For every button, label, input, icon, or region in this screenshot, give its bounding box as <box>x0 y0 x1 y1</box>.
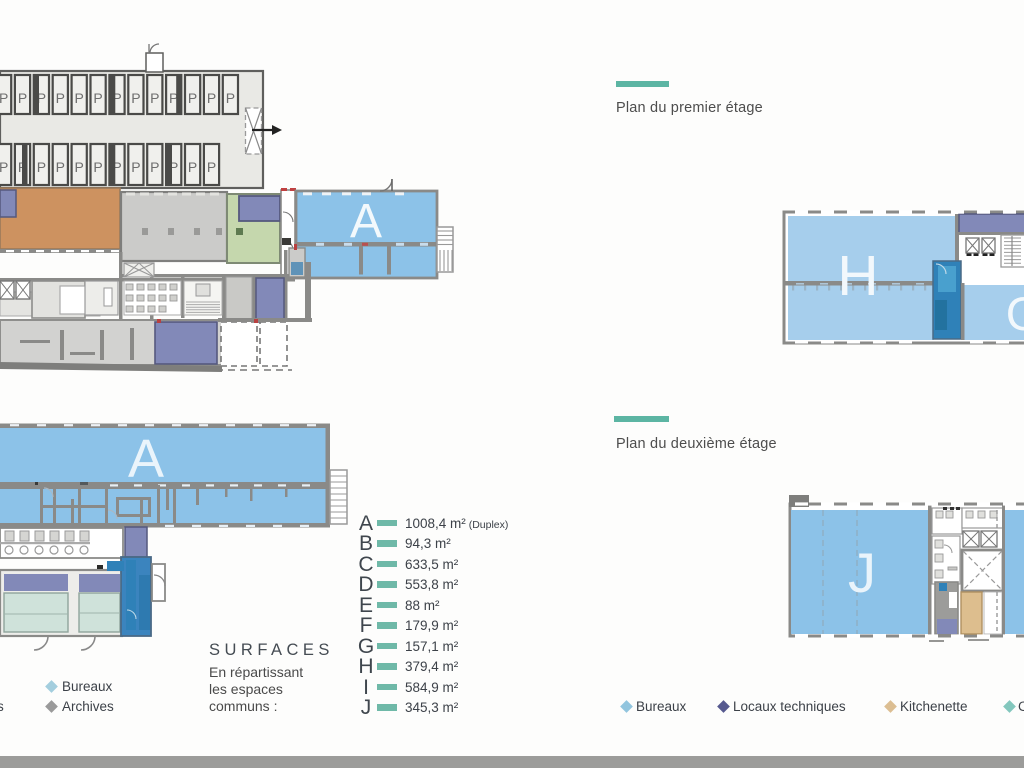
svg-text:P: P <box>37 159 46 175</box>
svg-text:P: P <box>75 90 84 106</box>
svg-text:A: A <box>128 429 164 489</box>
svg-text:P: P <box>93 159 102 175</box>
svg-text:P: P <box>150 159 159 175</box>
svg-text:J: J <box>848 541 876 604</box>
svg-text:P: P <box>188 90 197 106</box>
svg-text:G: G <box>1006 287 1024 340</box>
svg-text:P: P <box>131 159 140 175</box>
svg-text:P: P <box>0 159 8 175</box>
svg-text:P: P <box>150 90 159 106</box>
svg-text:A: A <box>350 195 382 248</box>
svg-text:P: P <box>0 90 8 106</box>
svg-text:P: P <box>56 159 65 175</box>
svg-text:P: P <box>207 90 216 106</box>
svg-text:H: H <box>837 244 878 308</box>
svg-text:P: P <box>188 159 197 175</box>
svg-text:P: P <box>56 90 65 106</box>
svg-text:P: P <box>207 159 216 175</box>
svg-text:P: P <box>93 90 102 106</box>
svg-text:P: P <box>226 90 235 106</box>
svg-text:P: P <box>18 90 27 106</box>
svg-text:P: P <box>75 159 84 175</box>
svg-text:P: P <box>131 90 140 106</box>
